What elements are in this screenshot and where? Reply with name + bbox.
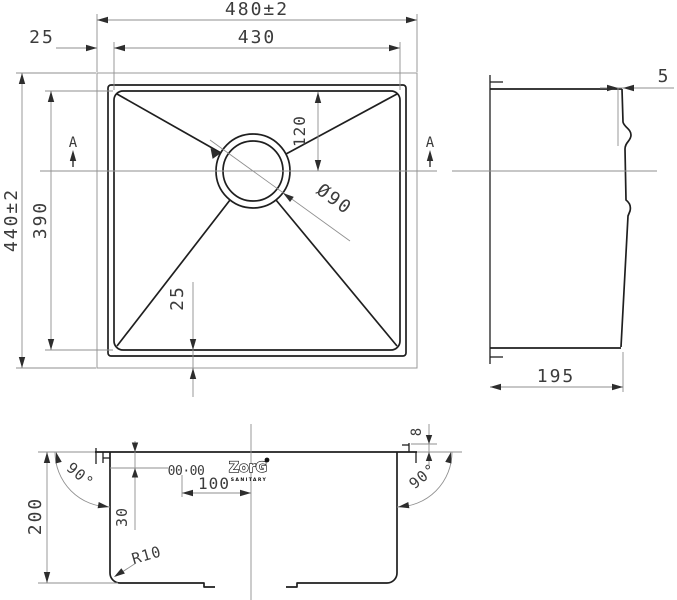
section-label-left: A	[69, 135, 78, 151]
dim-overflow-drop: 30	[113, 507, 131, 527]
angle-left-dimension: 90°	[53, 451, 110, 510]
corner-radius-callout: R10	[112, 542, 163, 579]
section-view: 200 90° 90° 8	[25, 424, 462, 600]
drain-diameter-callout: Ø90	[210, 140, 356, 241]
plan-rim-rect	[108, 85, 406, 356]
rim-height-dimension: 8	[409, 424, 437, 466]
dim-drain-diameter: Ø90	[312, 180, 356, 220]
plan-bowl-rect	[114, 91, 400, 350]
dim-depth: 195	[537, 366, 576, 387]
dim-section-height: 200	[25, 497, 46, 536]
side-profile	[490, 75, 631, 364]
plan-left-dimensions: 440±2 390	[1, 73, 113, 368]
dim-rim-lip: 5	[658, 66, 671, 87]
brand-logo-dot	[265, 458, 270, 463]
section-marker-left: A	[69, 135, 78, 167]
side-lip-dimension: 5	[600, 66, 674, 146]
brand-logo-text: ZorG	[229, 460, 267, 476]
plan-drain-offset-dimension: 120	[290, 92, 321, 171]
dim-inner-height: 390	[30, 201, 51, 240]
dim-inner-width: 430	[238, 27, 277, 48]
overflow-drop-dimension: 30	[110, 441, 168, 530]
dim-drain-from-top: 120	[290, 115, 309, 147]
section-marker-right: A	[426, 135, 435, 167]
overflow-marking: 00·00	[168, 464, 205, 479]
technical-drawing: A A 480±2 430 25	[0, 0, 677, 600]
plan-bottom-rim-dimension: 25	[167, 282, 196, 397]
plan-top-dimensions: 480±2 430 25	[29, 0, 417, 90]
section-label-right: A	[426, 135, 435, 151]
dim-overall-width: 480±2	[225, 0, 289, 20]
plan-bowl-diagonals	[117, 94, 397, 346]
dim-rim-height: 8	[409, 428, 425, 436]
plan-outer-rect	[97, 73, 417, 368]
side-view: 5 195	[452, 66, 674, 392]
dim-corner-radius: R10	[130, 542, 164, 568]
brand-logo-subtext: SANITARY	[231, 477, 268, 483]
dim-angle-right: 90°	[405, 460, 440, 493]
dim-rim-offset-bottom: 25	[167, 285, 188, 311]
dim-overall-height: 440±2	[1, 188, 22, 252]
plan-view: A A 480±2 430 25	[1, 0, 437, 397]
side-depth-dimension: 195	[490, 352, 623, 392]
brand-logo: ZorG SANITARY	[229, 458, 269, 483]
sink-technical-drawing-page: A A 480±2 430 25	[0, 0, 677, 600]
dim-rim-offset-left: 25	[29, 27, 55, 48]
dim-angle-left: 90°	[63, 459, 98, 492]
